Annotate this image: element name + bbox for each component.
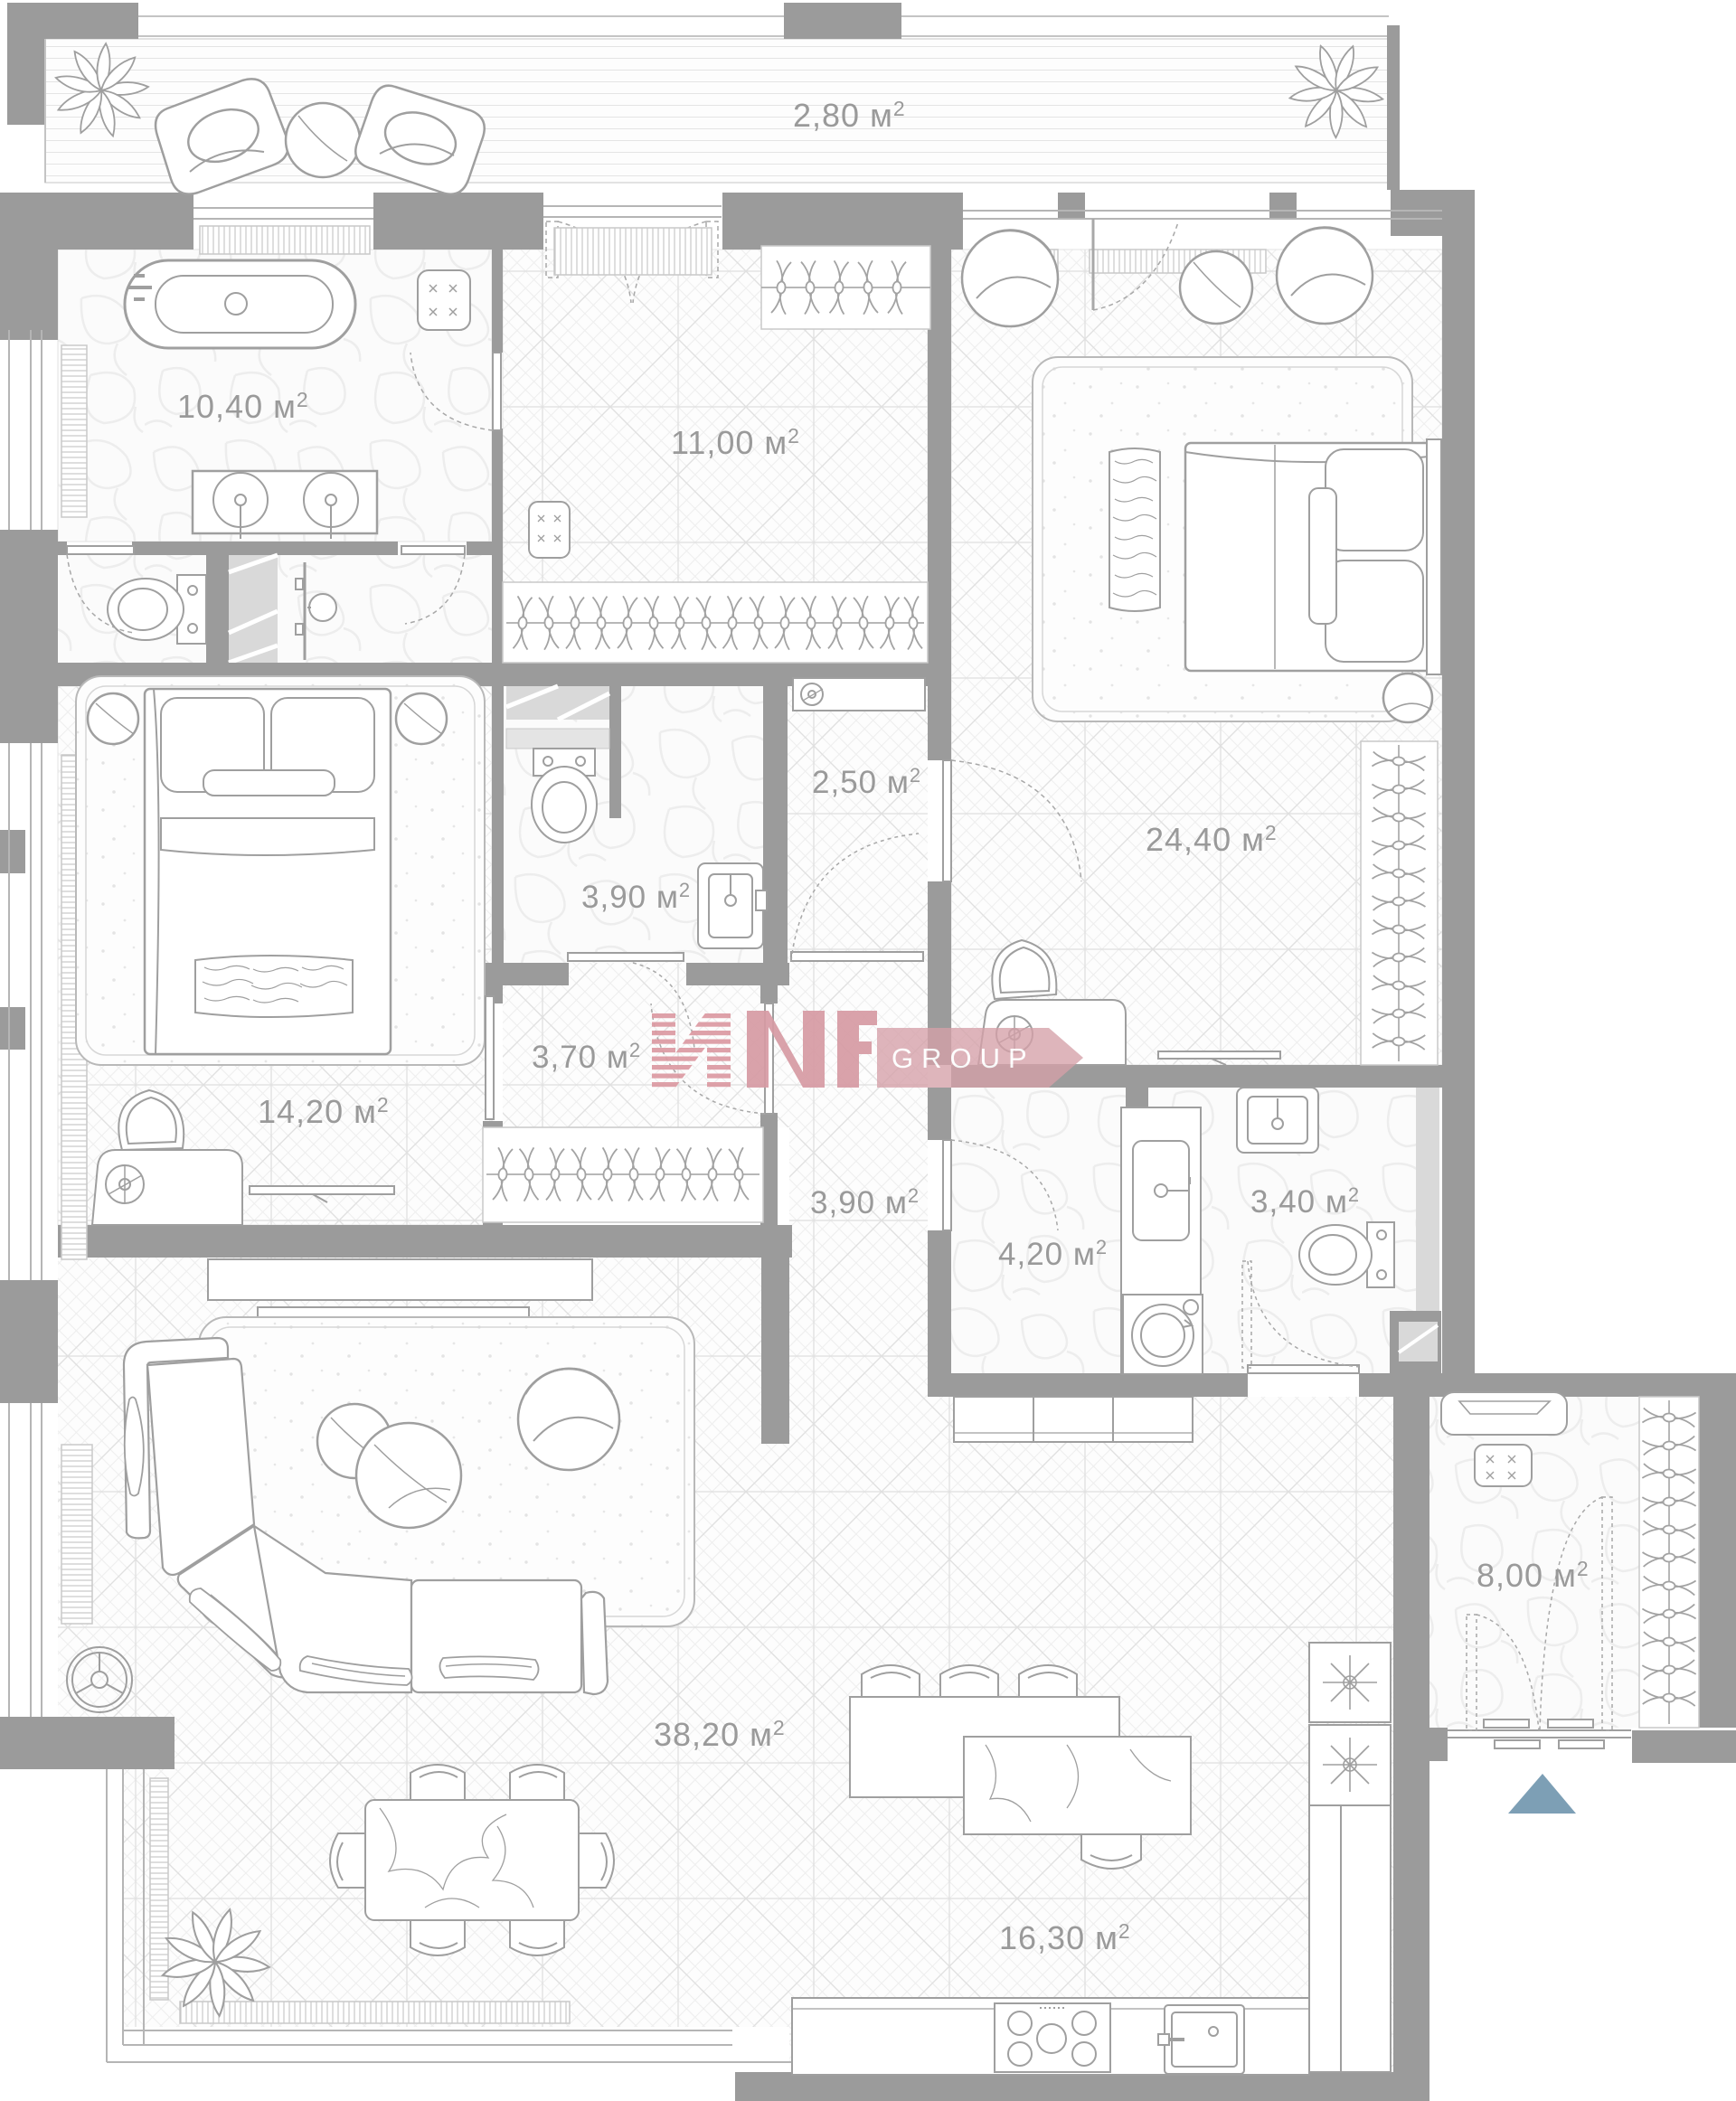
svg-text:11,00 м2: 11,00 м2 <box>671 424 800 461</box>
svg-text:3,90 м2: 3,90 м2 <box>810 1184 920 1220</box>
svg-text:10,40 м2: 10,40 м2 <box>177 388 309 425</box>
svg-text:8,00 м2: 8,00 м2 <box>1477 1557 1590 1594</box>
svg-text:14,20 м2: 14,20 м2 <box>258 1093 390 1130</box>
svg-text:2,80 м2: 2,80 м2 <box>793 97 906 134</box>
svg-text:3,90 м2: 3,90 м2 <box>581 879 691 915</box>
svg-text:3,70 м2: 3,70 м2 <box>532 1039 641 1075</box>
svg-text:16,30 м2: 16,30 м2 <box>999 1919 1131 1956</box>
svg-text:3,40 м2: 3,40 м2 <box>1250 1183 1360 1220</box>
svg-text:2,50 м2: 2,50 м2 <box>812 764 921 800</box>
svg-text:38,20 м2: 38,20 м2 <box>654 1716 786 1753</box>
svg-text:24,40 м2: 24,40 м2 <box>1146 821 1278 858</box>
svg-text:4,20 м2: 4,20 м2 <box>998 1236 1108 1272</box>
svg-text:GROUP: GROUP <box>892 1042 1035 1074</box>
